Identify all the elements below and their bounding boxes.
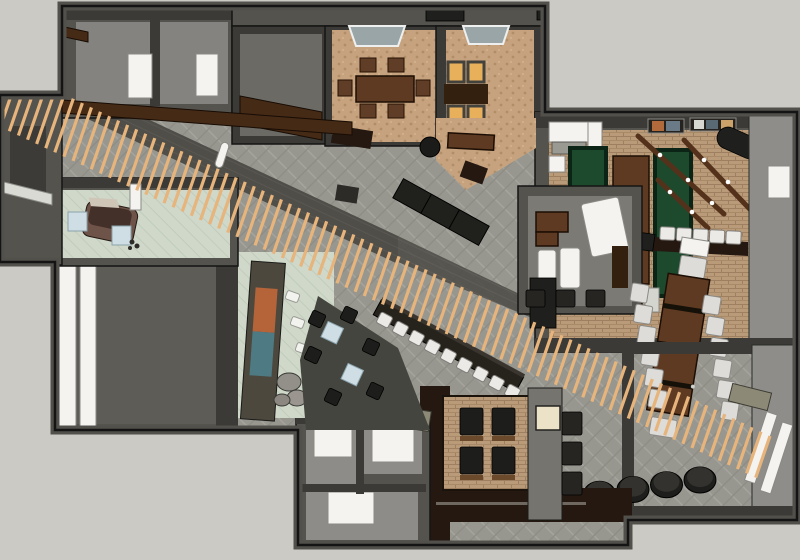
floorplan-3d-render <box>0 0 800 560</box>
door-opening <box>130 184 141 210</box>
skylight <box>463 26 509 44</box>
conference-chair <box>705 316 725 336</box>
conference-chair <box>630 283 650 303</box>
cubicle-opening <box>314 427 352 457</box>
bar-stool-white <box>709 230 725 244</box>
cream-column-top <box>536 406 560 430</box>
seat-cube <box>112 226 131 245</box>
artwork-panel <box>250 331 275 376</box>
bar-chair-dark <box>562 442 582 465</box>
cubicle-opening <box>328 492 374 524</box>
round-ottoman-top <box>654 472 680 492</box>
stool-dark <box>586 290 605 307</box>
rock <box>277 373 301 391</box>
rock <box>274 394 290 406</box>
bar-stool-white <box>726 231 742 245</box>
desk <box>536 212 568 232</box>
east-wall-band <box>749 112 797 352</box>
booth-table <box>444 84 488 104</box>
console-table <box>448 133 495 150</box>
bar-stool-white <box>660 227 676 241</box>
dark-sofa <box>612 246 628 288</box>
desk <box>536 232 558 246</box>
dining-chair <box>338 80 352 96</box>
offices-top-left <box>62 6 232 118</box>
window-panel <box>80 256 96 426</box>
door-opening <box>196 54 218 96</box>
seat-cube <box>68 212 87 231</box>
dining-chair <box>360 104 376 118</box>
amber-booth-chair <box>448 62 464 82</box>
bar-chair-dark <box>562 412 582 435</box>
dining-chair <box>388 58 404 72</box>
lounge-armchair <box>492 447 515 474</box>
lounge-armchair <box>460 447 483 474</box>
office-stools <box>526 290 605 307</box>
round-table <box>420 137 440 157</box>
dining-chair <box>416 80 430 96</box>
foot-chair <box>649 417 677 439</box>
dining-chair <box>360 58 376 72</box>
amber-booth-chair <box>468 62 484 82</box>
skylight <box>349 26 405 46</box>
round-ottoman-top <box>687 467 713 487</box>
lounge-armchair <box>460 408 483 435</box>
bar-side-chairs <box>562 412 582 495</box>
conference-chair <box>633 304 653 324</box>
planter <box>335 184 359 203</box>
stool-dark <box>556 290 575 307</box>
west-lounge-block <box>55 250 238 432</box>
door-opening <box>768 166 790 198</box>
window-panel <box>59 256 76 426</box>
artwork-panel <box>253 287 278 332</box>
bar-chair-dark <box>562 472 582 495</box>
floorplan-stage <box>0 0 800 560</box>
white-seat <box>560 248 580 288</box>
door-opening <box>128 54 152 98</box>
stool-dark <box>526 290 545 307</box>
conference-chair <box>702 295 722 315</box>
dining-table <box>356 76 414 102</box>
lounge-armchair <box>492 408 515 435</box>
dining-chair <box>388 104 404 118</box>
conference-chair <box>712 358 732 378</box>
